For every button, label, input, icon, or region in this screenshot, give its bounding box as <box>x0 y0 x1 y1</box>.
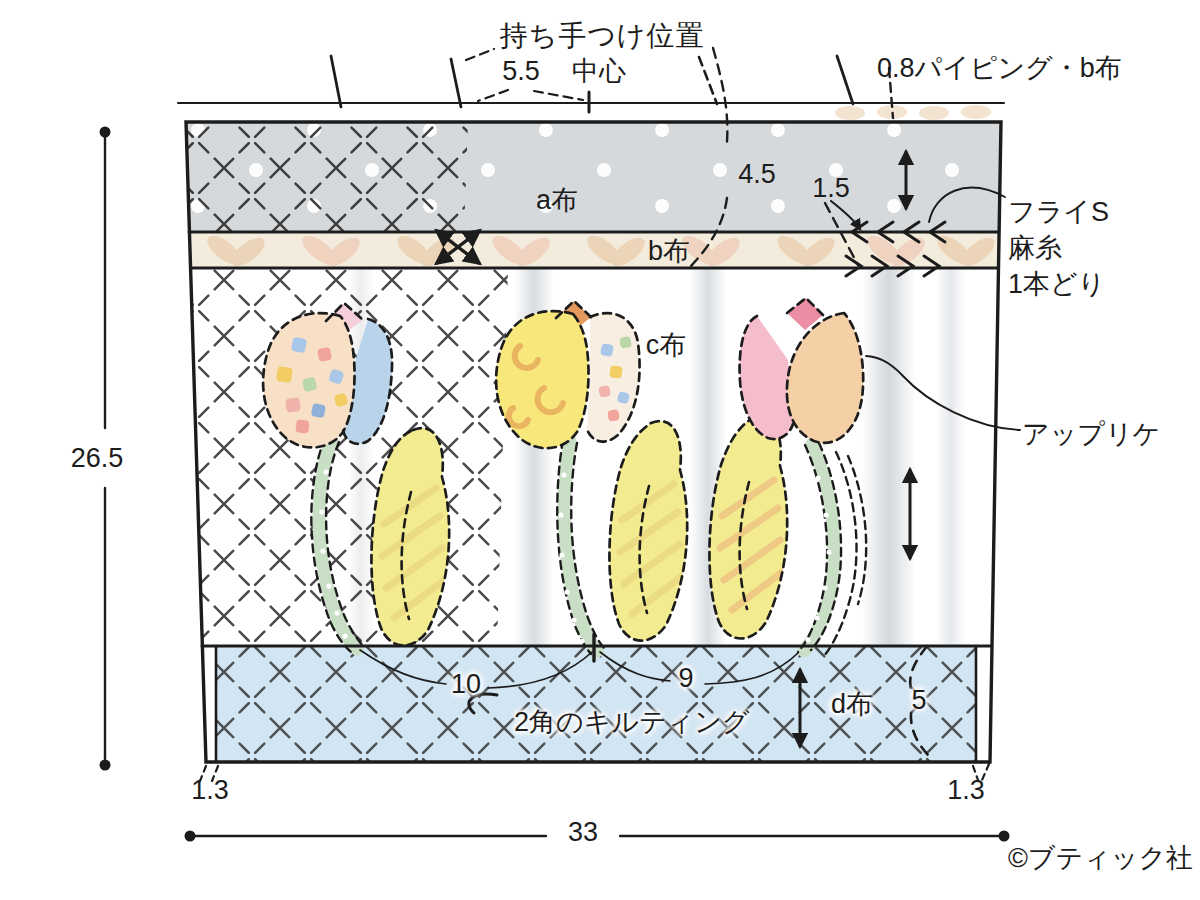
tulip-flower-middle <box>496 301 639 448</box>
band-height-dim: 1.5 <box>812 173 850 204</box>
bottom-band-dim: 5 <box>911 685 926 716</box>
bag-diagram-drawing <box>0 0 1200 900</box>
height-dim: 26.5 <box>71 443 124 474</box>
fly-stitch-label: フライS <box>1008 197 1109 228</box>
thread-label: 麻糸 <box>1008 233 1062 264</box>
tulip-flower-right <box>740 298 864 443</box>
sewing-pattern-diagram: 持ち手つけ位置 5.5 中心 0.8パイピング・b布 4.5 1.5 a布 b布… <box>0 0 1200 900</box>
center-label: 中心 <box>572 56 626 87</box>
fabric-b-label: b布 <box>648 236 690 267</box>
strand-label: 1本どり <box>1008 269 1105 300</box>
quilting-label: 2角のキルティング <box>514 707 749 738</box>
tulip-span-left-dim: 10 <box>451 669 481 700</box>
piping-label: 0.8パイピング・b布 <box>877 53 1122 84</box>
width-dim: 33 <box>568 817 598 848</box>
applique-label: アップリケ <box>1022 419 1160 450</box>
handle-offset-dim: 5.5 <box>502 56 540 87</box>
handle-position-label: 持ち手つけ位置 <box>500 20 705 52</box>
tulip-span-right-dim: 9 <box>678 663 693 694</box>
fabric-c-label: c布 <box>646 330 687 361</box>
fabric-a-label: a布 <box>536 185 578 216</box>
corner-right-dim: 1.3 <box>947 775 985 806</box>
copyright-label: ©ブティック社 <box>1008 843 1193 874</box>
corner-left-dim: 1.3 <box>191 775 229 806</box>
top-inset-dim: 4.5 <box>738 159 776 190</box>
fabric-d-label: d布 <box>831 689 873 720</box>
